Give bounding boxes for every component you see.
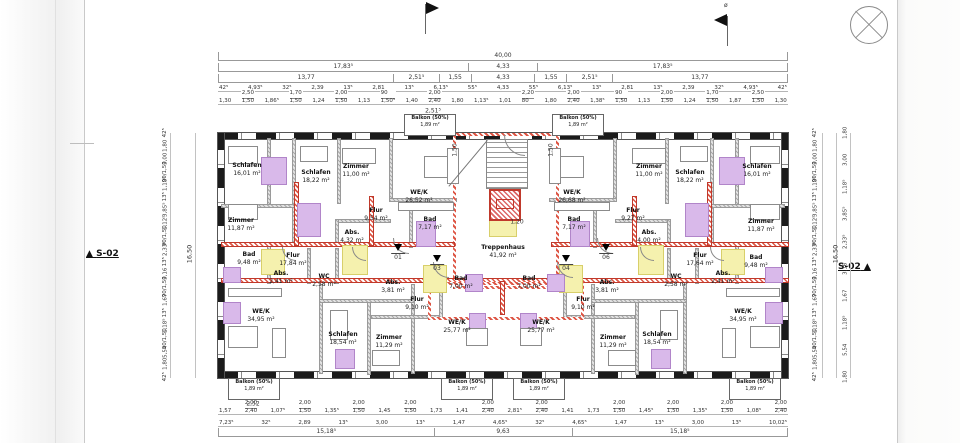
dim-value: 1,13 <box>357 99 371 105</box>
balcony-area: 1,89 m² <box>229 386 279 393</box>
room-area: 11,29 m² <box>599 342 626 350</box>
room-name: WC <box>312 273 336 281</box>
room-label: WC2,58 m² <box>664 273 688 289</box>
dim-value: 1,47 <box>452 421 466 427</box>
balcony-box: Balkon (50%)1,89 m² <box>404 114 456 136</box>
room-area: 3,81 m² <box>595 287 619 295</box>
dim-value: 1,35⁵ <box>324 409 340 415</box>
exterior-wall-left <box>218 133 224 378</box>
room-name: WE/K <box>558 189 585 197</box>
dim-value: 1,55 <box>544 75 557 83</box>
room-label: WC2,58 m² <box>312 273 336 289</box>
dim-value: 1,30 <box>774 99 788 105</box>
wall <box>390 139 392 201</box>
dim-value: 42⁵ <box>163 372 169 381</box>
room-name: Bad <box>517 275 541 283</box>
dim-value: 901,50 <box>614 91 628 104</box>
door-number: 04 <box>559 264 573 272</box>
door-number: 01 <box>391 253 405 261</box>
elevator <box>489 189 521 221</box>
dim-value: 1,45 <box>377 409 391 415</box>
dim-value: 1,50 <box>548 143 555 156</box>
dim-row: 15,18⁵9,6315,18⁵ <box>218 428 788 437</box>
room-area: 16,01 m² <box>742 171 771 179</box>
dim-value: 13⁵ <box>415 421 426 427</box>
dim-value: 2,002,40 <box>566 91 580 104</box>
dim-value: 1,80 <box>544 99 558 105</box>
dim-vchain-left: 42⁵1,803,0090/1,501,18⁵13⁵3,85⁵1,12⁵90/1… <box>160 130 172 380</box>
dim-value: 2,002,40 <box>427 91 441 104</box>
dim-value: 1,67 <box>813 294 819 306</box>
room-name: WE/K <box>247 308 274 316</box>
dim-value: 4,33 <box>496 86 510 92</box>
dim-value: 1,20 <box>510 219 523 226</box>
dim-value: 2,33⁵ <box>843 234 849 248</box>
wall <box>308 249 310 283</box>
dim-segment: 2,51⁵ <box>566 74 611 83</box>
bed <box>342 148 376 164</box>
room-label: Abs.3,81 m² <box>595 279 619 295</box>
dim-value: 55⁵ <box>467 86 478 92</box>
wall <box>368 300 370 374</box>
dim-value: 2,39 <box>681 86 695 92</box>
dim-value: 42⁵ <box>218 86 229 92</box>
sofa <box>272 328 286 358</box>
dim-value: 42⁵ <box>813 372 819 381</box>
room-area: 11,29 m² <box>375 342 402 350</box>
wall <box>684 285 686 373</box>
room-area: 7,17 m² <box>418 224 442 232</box>
room-name: Flur <box>686 252 713 260</box>
dim-value: 3,00 <box>843 154 849 166</box>
dim-value: 1,86⁵ <box>264 99 280 105</box>
dim-value: 1,67 <box>843 290 849 302</box>
balcony-area: 1,89 m² <box>405 122 455 129</box>
bed <box>608 350 636 366</box>
dim-value: 1,80 <box>450 99 464 105</box>
dim-value: 17,83⁵ <box>653 64 673 72</box>
dim-value: 1,47 <box>614 421 628 427</box>
dim-value: 2,001,50 <box>403 401 417 414</box>
room-label: WE/K34,95 m² <box>729 308 756 324</box>
room-name: Treppenhaus <box>481 244 525 252</box>
room-label: Schlafen16,01 m² <box>232 162 261 178</box>
dim-value: 9,63 <box>496 429 509 437</box>
highlight-patch <box>548 275 564 291</box>
room-area: 7,00 m² <box>517 283 541 291</box>
fire-wall <box>708 183 711 245</box>
dim-value: 1,55 <box>448 75 461 83</box>
room-label: Bad9,48 m² <box>744 254 768 270</box>
room-label: Zimmer11,29 m² <box>599 334 626 350</box>
room-label: Schlafen16,01 m² <box>742 163 771 179</box>
room-area: 25,77 m² <box>443 327 470 335</box>
dim-value: 1,80 <box>843 127 849 139</box>
dim-value: 1,80 <box>163 139 169 151</box>
dim-value: 32⁵ <box>534 421 545 427</box>
dim-row-total: 40,00 <box>218 52 788 61</box>
highlight-patch <box>336 350 354 368</box>
dim-value: 15,18⁵ <box>670 429 690 437</box>
highlight-patch <box>720 158 744 184</box>
room-name: WE/K <box>527 319 554 327</box>
bed <box>632 148 666 164</box>
dim-value: 2,501,50 <box>241 91 255 104</box>
room-area: 34,95 m² <box>729 316 756 324</box>
door-marker-icon <box>602 244 610 251</box>
dim-segment: 4,33 <box>468 63 538 72</box>
dim-value: 1,24 <box>311 99 325 105</box>
dim-vchain-right-outer: 1,803,001,18⁵3,85⁵2,33⁵3,161,671,18⁵5,54… <box>840 130 852 380</box>
room-label: Bad7,00 m² <box>517 275 541 291</box>
room-name: Bad <box>237 251 261 259</box>
room-label: WE/K26,68 m² <box>558 189 585 205</box>
dim-value: 1,18⁵ <box>843 316 849 330</box>
balcony-area: 1,89 m² <box>730 386 780 393</box>
room-label: Abs.2,41 m² <box>269 270 293 286</box>
balcony-label: Balkon (50%) <box>442 379 492 386</box>
room-name: Zimmer <box>599 334 626 342</box>
room-label: Abs.2,41 m² <box>711 270 735 286</box>
dim-total-right: 16,50 <box>831 245 839 264</box>
dim-value: 42⁵ <box>813 128 819 137</box>
bed <box>372 350 400 366</box>
fire-wall <box>501 282 504 314</box>
dim-vchain-right: 42⁵1,803,0090/1,501,18⁵13⁵3,85⁵1,12⁵90/1… <box>810 130 822 380</box>
room-area: 9,27 m² <box>621 215 645 223</box>
balcony-area: 1,89 m² <box>514 386 564 393</box>
room-label: Zimmer11,00 m² <box>342 163 369 179</box>
dim-value: 1,38⁵ <box>589 99 605 105</box>
balcony-area: 1,89 m² <box>442 386 492 393</box>
dim-total-left: 16,50 <box>185 245 193 264</box>
room-area: 34,95 m² <box>247 316 274 324</box>
room-name: Bad <box>562 216 586 224</box>
dim-value: 1,18⁵ <box>843 180 849 194</box>
balcony-box: Balkon (50%)1,89 m² <box>729 378 781 400</box>
dim-value: 2,2080 <box>521 91 535 104</box>
room-label: Zimmer11,87 m² <box>747 218 774 234</box>
room-name: Flur <box>571 296 595 304</box>
dim-value: 2,52 <box>246 401 259 408</box>
room-area: 7,17 m² <box>562 224 586 232</box>
dim-value: 13⁵ <box>338 421 349 427</box>
dim-value: 1,01 <box>498 99 512 105</box>
dim-segment: 15,18⁵ <box>218 428 434 437</box>
dim-value: 2,001,50 <box>612 401 626 414</box>
room-label: Abs.4,32 m² <box>340 229 364 245</box>
room-area: 18,22 m² <box>675 177 704 185</box>
dim-value: 1,18⁵ <box>163 177 169 191</box>
room-name: Flur <box>621 207 645 215</box>
highlight-patch <box>298 204 320 236</box>
room-name: Zimmer <box>342 163 369 171</box>
wall <box>666 139 668 203</box>
dim-segment: 13,77 <box>218 74 393 83</box>
dim-segment: 1,55 <box>534 74 566 83</box>
dim-value: 4,33 <box>496 75 509 83</box>
door-marker-icon <box>394 244 402 251</box>
dim-value: 42⁵ <box>163 128 169 137</box>
bed <box>300 146 328 162</box>
dim-value: 1,13⁵ <box>473 99 489 105</box>
room-area: 9,10 m² <box>571 304 595 312</box>
dim-value: 13⁵ <box>591 86 602 92</box>
room-area: 11,87 m² <box>747 226 774 234</box>
exterior-wall-right <box>782 133 788 378</box>
room-label: Zimmer11,87 m² <box>227 217 254 233</box>
room-area: 11,00 m² <box>342 171 369 179</box>
room-area: 17,64 m² <box>686 260 713 268</box>
dim-chain: 1,302,501,501,86⁵1,701,501,242,001,501,1… <box>218 93 788 105</box>
dim-segment: 17,83⁵ <box>537 63 788 72</box>
room-label: Flur9,10 m² <box>405 296 429 312</box>
dim-value: 13⁵ <box>731 421 742 427</box>
room-label: Bad7,17 m² <box>562 216 586 232</box>
highlight-patch <box>224 303 240 323</box>
dim-value: 2,501,50 <box>751 91 765 104</box>
dim-value: 13⁵ <box>813 257 819 266</box>
sofa <box>722 328 736 358</box>
room-label: Schlafen18,54 m² <box>328 331 357 347</box>
wall <box>711 139 713 246</box>
room-label: WE/K25,77 m² <box>527 319 554 335</box>
room-name: Abs. <box>381 279 405 287</box>
wall <box>320 300 414 302</box>
dim-segment: 17,83⁵ <box>218 63 468 72</box>
dim-value: 13⁵ <box>163 192 169 201</box>
dim-value: 13,77 <box>298 75 315 83</box>
room-area: 26,52 m² <box>405 197 432 205</box>
dim-value: 5,54 <box>843 344 849 356</box>
dim-chain: 1,572,002,401,07⁵2,001,501,35⁵2,001,501,… <box>218 403 788 415</box>
room-area: 18,22 m² <box>301 177 330 185</box>
dim-value: 13⁵ <box>813 308 819 317</box>
room-area: 2,58 m² <box>312 281 336 289</box>
room-label: Bad7,17 m² <box>418 216 442 232</box>
dim-value: 1,87 <box>728 99 742 105</box>
dim-value: 2,51⁵ <box>582 75 598 83</box>
dim-value: 2,002,40 <box>535 401 549 414</box>
room-name: Bad <box>418 216 442 224</box>
balcony-label: Balkon (50%) <box>405 115 455 122</box>
room-name: Zimmer <box>747 218 774 226</box>
dim-segment: 15,18⁵ <box>572 428 789 437</box>
dim-value: 4,65⁵ <box>492 421 508 427</box>
wall <box>592 300 686 302</box>
dim-value: 1,07⁵ <box>270 409 286 415</box>
room-name: Schlafen <box>328 331 357 339</box>
room-label: WE/K25,77 m² <box>443 319 470 335</box>
dim-value: 3,85⁵ <box>843 207 849 221</box>
bed <box>680 146 708 162</box>
dim-line <box>822 133 823 378</box>
kitchen-counter <box>726 288 780 297</box>
dim-value: 1,50 <box>452 143 459 156</box>
dim-segment: 9,63 <box>434 428 572 437</box>
room-area: 9,48 m² <box>237 259 261 267</box>
dim-value: 13⁵ <box>813 192 819 201</box>
wall <box>320 285 322 373</box>
dim-value: 1,40 <box>405 99 419 105</box>
dim-value: 10,02⁵ <box>768 421 788 427</box>
door-marker-icon <box>433 255 441 262</box>
dim-row: 17,83⁵4,3317,83⁵ <box>218 63 788 72</box>
dim-value: 2,51⁵ <box>409 75 425 83</box>
balcony-area: 1,89 m² <box>553 122 603 129</box>
room-label: Zimmer11,00 m² <box>635 163 662 179</box>
dim-value: 2,33⁵ <box>163 241 169 255</box>
room-name: Flur <box>405 296 429 304</box>
room-label: WE/K34,95 m² <box>247 308 274 324</box>
dim-value: 2,51⁵ <box>425 108 441 115</box>
dim-row: 13,772,51⁵1,554,331,552,51⁵13,77 <box>218 74 788 83</box>
dim-chain: 42⁵4,93⁵32⁵2,3913⁵2,8113⁵6,13⁵55⁵4,3355⁵… <box>218 84 788 92</box>
room-area: 2,41 m² <box>269 278 293 286</box>
dim-value: 13⁵ <box>163 257 169 266</box>
room-name: Schlafen <box>675 169 704 177</box>
dim-value: 1,67 <box>163 294 169 306</box>
dim-value: 3,00 <box>691 421 705 427</box>
dim-value: 1,41 <box>455 409 469 415</box>
room-area: 11,87 m² <box>227 225 254 233</box>
room-name: Zimmer <box>375 334 402 342</box>
dim-value: 1,08⁵ <box>746 409 762 415</box>
dim-value: 2,81⁵ <box>507 409 523 415</box>
room-name: Flur <box>279 252 306 260</box>
room-area: 9,48 m² <box>744 262 768 270</box>
dim-value: 3,16 <box>843 262 849 274</box>
wall <box>338 139 340 203</box>
room-label: Flur9,54 m² <box>364 207 388 223</box>
room-name: WC <box>664 273 688 281</box>
dim-value: 1,35⁵ <box>692 409 708 415</box>
dim-value: 3,00 <box>375 421 389 427</box>
dim-value: 2,39 <box>310 86 324 92</box>
room-name: Zimmer <box>635 163 662 171</box>
dim-value: 2,001,50 <box>352 401 366 414</box>
exterior-wall-bottom <box>218 372 788 378</box>
balcony-label: Balkon (50%) <box>730 379 780 386</box>
dim-value: 1,13 <box>637 99 651 105</box>
dim-value: 1,73 <box>586 409 600 415</box>
dim-value: 2,001,50 <box>666 401 680 414</box>
dim-value: 1,45⁵ <box>638 409 654 415</box>
room-area: 26,68 m² <box>558 197 585 205</box>
dining-table <box>750 326 780 348</box>
room-label: Zimmer11,29 m² <box>375 334 402 350</box>
room-label: Schlafen18,22 m² <box>301 169 330 185</box>
dim-value: 1,80 <box>163 358 169 370</box>
room-name: Bad <box>744 254 768 262</box>
balcony-label: Balkon (50%) <box>229 379 279 386</box>
dim-value: 1,24 <box>682 99 696 105</box>
dim-value: 1,80 <box>843 371 849 383</box>
dim-value: 13⁵ <box>403 86 414 92</box>
dim-value: 901,50⁵ <box>380 91 396 104</box>
room-area: 2,41 m² <box>711 278 735 286</box>
bed <box>750 146 780 164</box>
room-name: Abs. <box>711 270 735 278</box>
room-area: 41,92 m² <box>481 252 525 260</box>
highlight-patch <box>686 204 708 236</box>
dim-segment: 40,00 <box>218 52 788 61</box>
dim-value: 1,30 <box>218 99 232 105</box>
room-label: Flur9,10 m² <box>571 296 595 312</box>
room-name: Schlafen <box>642 331 671 339</box>
dim-value: 2,001,50 <box>660 91 674 104</box>
balcony-label: Balkon (50%) <box>553 115 603 122</box>
dim-segment: 1,55 <box>439 74 471 83</box>
room-name: Abs. <box>340 229 364 237</box>
dim-value: 42⁵ <box>777 86 788 92</box>
highlight-patch <box>766 268 782 282</box>
dim-value: 40,00 <box>494 53 511 61</box>
room-area: 3,81 m² <box>381 287 405 295</box>
highlight-patch <box>766 303 782 323</box>
room-name: Bad <box>449 275 473 283</box>
wall <box>336 249 338 283</box>
room-area: 18,54 m² <box>328 339 357 347</box>
elevator-label-box <box>496 199 514 209</box>
room-name: Schlafen <box>742 163 771 171</box>
room-name: Abs. <box>269 270 293 278</box>
balcony-box: Balkon (50%)1,89 m² <box>552 114 604 136</box>
balcony-box: Balkon (50%)1,89 m² <box>513 378 565 400</box>
room-name: Zimmer <box>227 217 254 225</box>
room-label: Bad7,00 m² <box>449 275 473 291</box>
dim-value: 7,23⁵ <box>218 421 234 427</box>
dim-value: 2,89 <box>297 421 311 427</box>
room-area: 2,58 m² <box>664 281 688 289</box>
dim-line <box>195 133 196 378</box>
room-area: 7,00 m² <box>449 283 473 291</box>
room-area: 4,32 m² <box>340 237 364 245</box>
dim-value: 1,73 <box>429 409 443 415</box>
dim-segment: 4,33 <box>471 74 535 83</box>
room-name: WE/K <box>405 189 432 197</box>
door-marker-icon <box>562 255 570 262</box>
dim-value: 1,80 <box>813 139 819 151</box>
room-name: WE/K <box>443 319 470 327</box>
dining-table <box>228 326 258 348</box>
dim-value: 1,80 <box>813 358 819 370</box>
dim-value: 1,41 <box>560 409 574 415</box>
room-label: Abs.3,81 m² <box>381 279 405 295</box>
dim-value: 1,701,50 <box>289 91 303 104</box>
room-area: 9,54 m² <box>364 215 388 223</box>
dim-value: 2,001,50 <box>720 401 734 414</box>
room-label: Schlafen18,22 m² <box>675 169 704 185</box>
drawing-canvas: ø ▲ S-02 S-02 ▲ <box>0 0 960 443</box>
room-area: 17,84 m² <box>279 260 306 268</box>
room-name: Schlafen <box>232 162 261 170</box>
room-area: 11,00 m² <box>635 171 662 179</box>
dim-value: 1,18⁵ <box>813 177 819 191</box>
room-label: WE/K26,52 m² <box>405 189 432 205</box>
room-label: Flur9,27 m² <box>621 207 645 223</box>
room-label: Abs.4,00 m² <box>637 229 661 245</box>
highlight-patch <box>262 158 286 184</box>
dim-value: 13⁵ <box>163 308 169 317</box>
room-label: Bad9,48 m² <box>237 251 261 267</box>
room-area: 9,10 m² <box>405 304 429 312</box>
highlight-patch <box>470 314 485 328</box>
balcony-label: Balkon (50%) <box>514 379 564 386</box>
room-label: Flur17,84 m² <box>279 252 306 268</box>
wall <box>614 139 616 201</box>
dim-value: 15,18⁵ <box>316 429 336 437</box>
